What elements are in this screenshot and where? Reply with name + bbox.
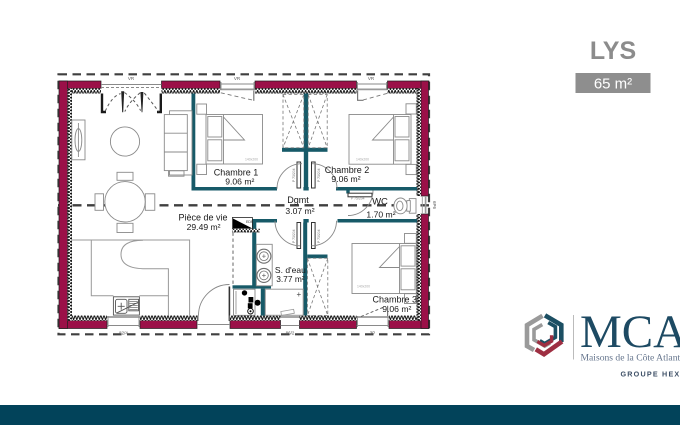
- svg-text:3.77 m²: 3.77 m²: [276, 274, 305, 284]
- svg-text:65 m²: 65 m²: [594, 76, 632, 93]
- svg-text:82/4: 82/4: [119, 331, 128, 336]
- svg-text:P 73/204: P 73/204: [317, 168, 321, 182]
- svg-text:VR: VR: [234, 76, 241, 81]
- svg-text:VR: VR: [128, 76, 135, 81]
- svg-text:140x200: 140x200: [357, 285, 370, 289]
- svg-text:P 75/204: P 75/204: [351, 197, 365, 201]
- svg-text:3P: 3P: [370, 331, 376, 336]
- svg-text:Dgmt: Dgmt: [287, 195, 309, 205]
- svg-text:9.06 m²: 9.06 m²: [331, 174, 360, 184]
- svg-text:1.70 m²: 1.70 m²: [366, 209, 395, 219]
- svg-text:Maisons de la Côte Atlantique: Maisons de la Côte Atlantique: [581, 352, 680, 363]
- svg-text:VR: VR: [368, 76, 375, 81]
- svg-text:9.06 m²: 9.06 m²: [382, 304, 411, 314]
- svg-text:P 73/204: P 73/204: [317, 229, 321, 243]
- svg-text:6P6: 6P6: [432, 201, 437, 210]
- svg-text:9.06 m²: 9.06 m²: [225, 176, 254, 186]
- svg-text:3.07 m²: 3.07 m²: [285, 206, 314, 216]
- svg-text:140x200: 140x200: [245, 158, 258, 162]
- svg-text:86/2: 86/2: [286, 331, 295, 336]
- svg-text:29.49 m²: 29.49 m²: [187, 222, 221, 232]
- svg-text:Chambre 3: Chambre 3: [373, 295, 418, 305]
- svg-text:P 73/204: P 73/204: [292, 168, 296, 182]
- svg-text:140x200: 140x200: [356, 158, 369, 162]
- svg-text:GROUPE HEXAOM: GROUPE HEXAOM: [621, 369, 680, 378]
- svg-text:+: +: [296, 290, 301, 299]
- svg-text:EDF: EDF: [246, 220, 254, 224]
- svg-text:WC: WC: [372, 197, 388, 208]
- svg-text:LYS: LYS: [590, 37, 636, 65]
- svg-text:MCA: MCA: [580, 306, 680, 358]
- svg-text:P 73/204: P 73/204: [292, 229, 296, 243]
